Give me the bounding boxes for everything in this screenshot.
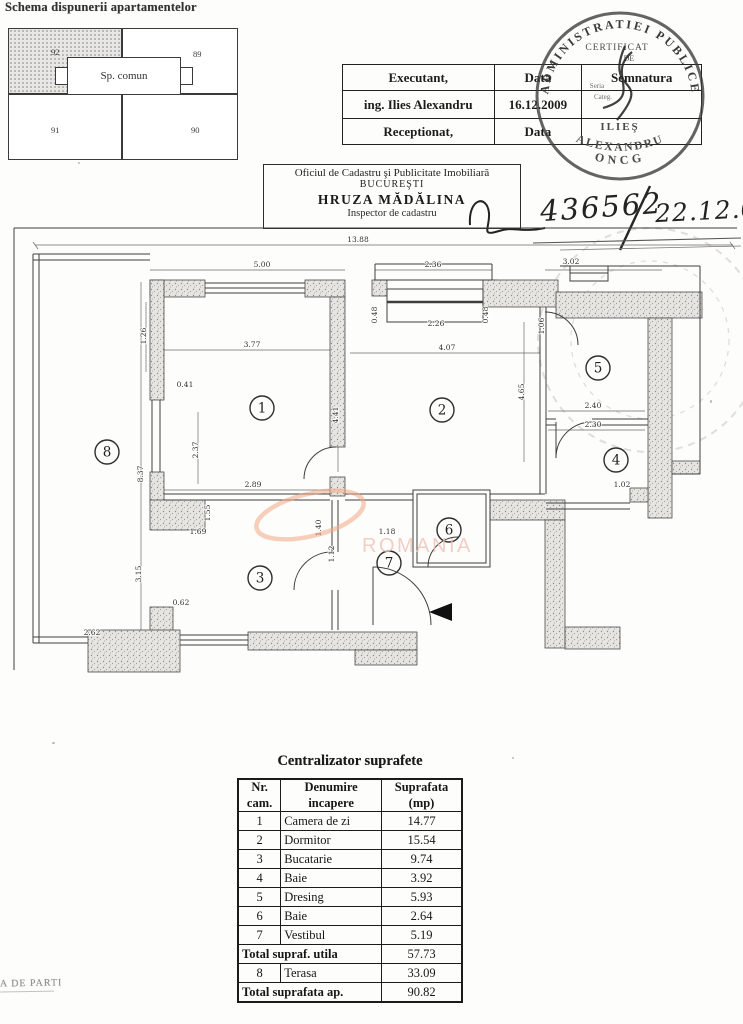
area-row-value: 15.54 [382, 831, 462, 850]
dimension-label: 5.00 [254, 260, 271, 269]
office-name: Oficiul de Cadastru şi Publicitate Imobi… [264, 167, 520, 179]
dimension-label: 13.88 [347, 235, 369, 244]
stamp-name-ilies: ILIEŞ [600, 121, 639, 133]
total-label: Total suprafata ap. [238, 983, 382, 1003]
total-row: Total suprafata ap. 90.82 [238, 983, 462, 1003]
stamp-categ: Categ. [594, 93, 612, 101]
col-header-nr: Nr.cam. [238, 779, 281, 812]
dimension-label: 3.77 [244, 340, 261, 349]
area-row-value: 3.92 [382, 869, 462, 888]
total-useful-label: Total supraf. utila [238, 945, 382, 964]
receptionat-label: Receptionat, [343, 119, 495, 145]
area-row-name: Dresing [281, 888, 382, 907]
area-row: 4Baie3.92 [238, 869, 462, 888]
cutoff-text-fragment: A DE PARTI [0, 977, 62, 992]
room-number: 8 [103, 445, 112, 461]
watermark-text: ROMANIA [362, 535, 473, 557]
dimension-label: 2.36 [425, 260, 442, 269]
dimension-label: 4.07 [439, 343, 456, 352]
scan-speck [78, 162, 80, 164]
dimension-label: 2.62 [84, 628, 101, 637]
stamp-arc-text: ADMINISTRATIEI PUBLICE [537, 17, 703, 95]
area-row-value: 9.74 [382, 850, 462, 869]
area-row-nr: 2 [238, 831, 281, 850]
dimension-label: 4.41 [331, 407, 340, 424]
watermark-swoosh [252, 481, 369, 548]
area-row-name: Vestibul [281, 926, 382, 945]
cadastre-office-box: Oficiul de Cadastru şi Publicitate Imobi… [263, 164, 521, 229]
room-number: 4 [612, 453, 621, 469]
area-row-nr: 5 [238, 888, 281, 907]
room-number: 7 [385, 556, 394, 572]
dimension-label: 3.15 [134, 565, 143, 582]
area-row-nr: 3 [238, 850, 281, 869]
area-row-nr: 7 [238, 926, 281, 945]
area-row: 1Camera de zi14.77 [238, 812, 462, 831]
engineer-name: ing. Ilies Alexandru [343, 91, 495, 119]
area-row: 2Dormitor15.54 [238, 831, 462, 850]
col-header-name: Denumireincapere [281, 779, 382, 812]
scanned-cadastre-document: Schema dispunerii apartamentelor 92 89 9… [0, 0, 743, 1024]
scan-speck [52, 742, 55, 744]
area-row: 7Vestibul5.19 [238, 926, 462, 945]
entrance-arrow [429, 603, 452, 621]
area-row: 6Baie2.64 [238, 907, 462, 926]
area-row-value: 5.19 [382, 926, 462, 945]
area-row-value: 14.77 [382, 812, 462, 831]
area-row-name: Baie [281, 869, 382, 888]
terrace-name: Terasa [281, 964, 382, 983]
area-row-name: Camera de zi [281, 812, 382, 831]
office-city: BUCUREŞTI [264, 179, 520, 190]
dimension-label: 2.30 [585, 420, 602, 429]
floor-plan: 12345678 13.885.002.363.022.264.073.770.… [0, 222, 743, 705]
total-useful-row: Total supraf. utila 57.73 [238, 945, 462, 964]
area-row-name: Dormitor [281, 831, 382, 850]
dimension-label: 1.12 [327, 545, 336, 562]
area-row-nr: 4 [238, 869, 281, 888]
dimension-label: 8.37 [136, 465, 145, 482]
dimension-label: 2.40 [585, 401, 602, 410]
col-header-area: Suprafata(mp) [382, 779, 462, 812]
dimension-label: 1.02 [614, 480, 631, 489]
area-row: 5Dresing5.93 [238, 888, 462, 907]
dimension-label: 0.48 [370, 306, 379, 323]
room-number: 1 [258, 401, 267, 417]
total-useful-value: 57.73 [382, 945, 462, 964]
dimension-label: 1.69 [190, 527, 207, 536]
room-number: 3 [256, 571, 265, 587]
stamp-certificat: CERTIFICAT [585, 43, 648, 53]
areas-header-row: Nr.cam. Denumireincapere Suprafata(mp) [238, 779, 462, 812]
apartment-arrangement-diagram: 92 89 91 90 Sp. comun [8, 28, 238, 160]
terrace-nr: 8 [238, 964, 281, 983]
dimension-label: 1.26 [139, 327, 148, 344]
round-certification-stamp: ADMINISTRATIEI PUBLICE CERTIFICAT DE Ser… [533, 8, 707, 182]
area-row-nr: 6 [238, 907, 281, 926]
areas-table: Nr.cam. Denumireincapere Suprafata(mp) 1… [237, 778, 463, 1003]
scan-speck [710, 400, 712, 403]
terrace-row: 8 Terasa 33.09 [238, 964, 462, 983]
scan-speck [512, 757, 514, 759]
room-number: 5 [594, 361, 603, 377]
area-row-nr: 1 [238, 812, 281, 831]
area-row-name: Bucatarie [281, 850, 382, 869]
apartment-number: 90 [191, 125, 200, 135]
dimension-label: 0.41 [177, 380, 194, 389]
area-row-value: 2.64 [382, 907, 462, 926]
dimension-label: 2.89 [245, 480, 262, 489]
total-value: 90.82 [382, 983, 462, 1003]
dimension-label: 1.55 [203, 504, 212, 521]
stamp-signature-scribble [603, 46, 632, 120]
hatched-walls [88, 280, 702, 672]
svg-text:ALEXANDRU: ALEXANDRU [574, 133, 665, 154]
area-row: 3Bucatarie9.74 [238, 850, 462, 869]
apartment-number: 92 [51, 47, 60, 57]
executant-label: Executant, [343, 65, 495, 91]
dimension-label: 0.48 [481, 306, 490, 323]
dimension-label: 2.26 [428, 319, 445, 328]
stamp-seria: Seria [590, 82, 605, 90]
common-space-label: Sp. comun [67, 57, 181, 95]
dimension-label: 2.37 [191, 441, 200, 458]
areas-table-title: Centralizator suprafete [237, 753, 463, 770]
dimension-label: 4.65 [517, 383, 526, 400]
area-row-value: 5.93 [382, 888, 462, 907]
dimension-label: 3.02 [563, 257, 580, 266]
inspector-name: HRUZA MĂDĂLINA [264, 192, 520, 208]
room-number: 2 [438, 403, 447, 419]
apartment-layout-title: Schema dispunerii apartamentelor [5, 0, 197, 15]
terrace-area: 33.09 [382, 964, 462, 983]
apartment-number: 91 [51, 125, 60, 135]
watermark: ROMANIA [252, 481, 473, 557]
apartment-number: 89 [193, 49, 202, 59]
svg-text:ADMINISTRATIEI PUBLICE: ADMINISTRATIEI PUBLICE [537, 17, 703, 95]
inspector-role: Inspector de cadastru [264, 208, 520, 219]
area-row-name: Baie [281, 907, 382, 926]
stamp-name-alexandru: ALEXANDRU [574, 133, 665, 154]
dimension-label: 1.06 [537, 317, 546, 334]
dimension-label: 0.62 [173, 598, 190, 607]
